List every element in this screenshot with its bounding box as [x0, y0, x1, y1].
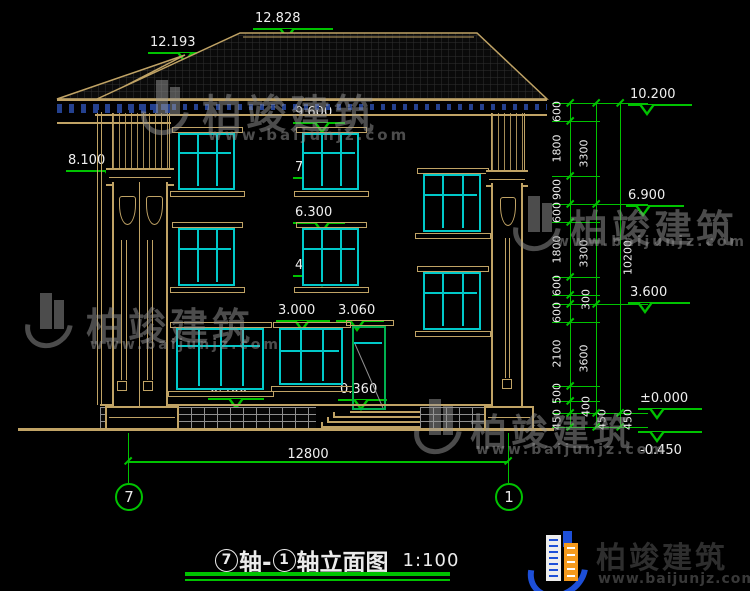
left-pilaster-foot: [117, 381, 127, 391]
porch-bracket-row: [57, 104, 171, 113]
logo-tower-orange: [564, 543, 578, 581]
logo-tower-windows: [567, 547, 575, 577]
axis-bubble-7: 7: [115, 483, 143, 511]
title-axis-bubble-start: 7: [215, 549, 238, 572]
drawing-scale: 1:100: [403, 550, 460, 571]
left-pilaster-flutes: [112, 113, 170, 168]
elevation-drawing-canvas: 7轴-1轴立面图 1:100 柏竣建筑 www.baijunjz.com 12.…: [0, 0, 750, 591]
title-underline-thick: [185, 572, 450, 576]
wall-corner-left-inner: [101, 112, 102, 405]
right-pilaster-panel-line: [505, 238, 506, 378]
left-pilaster-divider: [139, 182, 140, 407]
left-pilaster-panel-line: [152, 240, 153, 380]
axis-bubble-1: 1: [495, 483, 523, 511]
right-pilaster-panel-line: [509, 238, 510, 378]
right-pilaster-foot: [502, 379, 512, 389]
ground-line: [18, 428, 554, 431]
left-pilaster-foot: [143, 381, 153, 391]
door-swing-line: [355, 344, 383, 408]
brand-logo: 柏竣建筑 www.baijunjz.com: [524, 531, 750, 591]
brand-url: www.baijunjz.com: [598, 571, 750, 587]
logo-tower-white: [546, 535, 561, 581]
left-pilaster-panel-line: [126, 240, 127, 380]
title-axis-bubble-end: 1: [273, 549, 296, 572]
left-pilaster-panel-line: [121, 240, 122, 380]
right-pilaster-flutes: [491, 113, 525, 170]
logo-tower-windows: [549, 539, 558, 577]
wall-corner-left-outer: [97, 112, 98, 405]
title-underline-thin: [185, 579, 450, 581]
left-pilaster-panel-line: [147, 240, 148, 380]
